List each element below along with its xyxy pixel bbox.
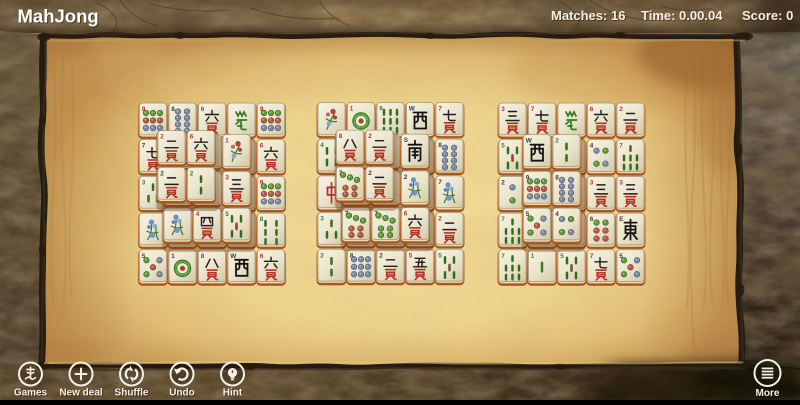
svg-text:7: 7: [501, 253, 505, 260]
svg-text:3: 3: [590, 179, 594, 186]
svg-text:3: 3: [320, 216, 324, 223]
svg-text:6: 6: [201, 106, 205, 113]
svg-text:5: 5: [225, 211, 229, 218]
svg-text:7: 7: [531, 106, 535, 113]
svg-text:S: S: [404, 137, 409, 144]
svg-text:2: 2: [619, 106, 623, 113]
svg-text:8: 8: [171, 106, 175, 113]
svg-text:7: 7: [438, 179, 442, 186]
svg-text:2: 2: [501, 179, 505, 186]
svg-text:8: 8: [201, 253, 205, 260]
svg-text:7: 7: [590, 253, 594, 260]
svg-text:1: 1: [531, 253, 535, 260]
svg-text:5: 5: [438, 252, 442, 259]
svg-text:8: 8: [260, 216, 264, 223]
svg-text:7: 7: [501, 216, 505, 223]
svg-text:Time: 0.00.04: Time: 0.00.04: [641, 8, 723, 23]
svg-text:8: 8: [555, 174, 559, 181]
svg-text:9: 9: [379, 106, 383, 113]
svg-text:4: 4: [555, 211, 559, 218]
svg-text:E: E: [619, 216, 624, 223]
svg-text:2: 2: [368, 133, 372, 140]
svg-text:2: 2: [368, 170, 372, 177]
svg-text:2: 2: [379, 252, 383, 259]
svg-text:2: 2: [160, 170, 164, 177]
svg-text:3: 3: [619, 179, 623, 186]
svg-text:Score: 0: Score: 0: [742, 8, 793, 23]
svg-text:7: 7: [438, 106, 442, 113]
svg-text:4: 4: [590, 143, 594, 150]
svg-text:2: 2: [404, 174, 408, 181]
svg-text:4: 4: [196, 211, 200, 218]
svg-text:1: 1: [225, 138, 229, 145]
svg-text:5: 5: [560, 253, 564, 260]
svg-text:7: 7: [142, 143, 146, 150]
svg-text:Shuffle: Shuffle: [115, 388, 149, 399]
svg-text:3: 3: [225, 174, 229, 181]
svg-text:6: 6: [260, 143, 264, 150]
svg-text:6: 6: [590, 216, 594, 223]
svg-text:3: 3: [501, 106, 505, 113]
svg-text:1: 1: [171, 253, 175, 260]
svg-text:6: 6: [590, 106, 594, 113]
svg-text:W: W: [526, 138, 533, 145]
svg-text:2: 2: [320, 252, 324, 259]
svg-text:8: 8: [339, 133, 343, 140]
svg-text:4: 4: [320, 142, 324, 149]
svg-text:6: 6: [260, 253, 264, 260]
svg-text:2: 2: [438, 216, 442, 223]
svg-text:W: W: [230, 253, 237, 260]
svg-text:More: More: [756, 388, 780, 399]
svg-text:2: 2: [190, 170, 194, 177]
svg-text:8: 8: [438, 142, 442, 149]
svg-text:Games: Games: [14, 388, 48, 399]
svg-text:2: 2: [555, 138, 559, 145]
svg-text:1: 1: [350, 106, 354, 113]
svg-text:7: 7: [619, 143, 623, 150]
svg-text:MahJong: MahJong: [18, 6, 99, 27]
svg-text:6: 6: [404, 211, 408, 218]
svg-text:5: 5: [501, 143, 505, 150]
svg-text:Matches: 16: Matches: 16: [551, 8, 625, 23]
svg-text:W: W: [409, 106, 416, 113]
svg-text:New deal: New deal: [59, 388, 103, 399]
svg-text:2: 2: [160, 134, 164, 141]
svg-text:3: 3: [142, 179, 146, 186]
svg-text:6: 6: [190, 134, 194, 141]
svg-text:Undo: Undo: [169, 388, 195, 399]
svg-text:Hint: Hint: [223, 388, 243, 399]
svg-text:5: 5: [409, 252, 413, 259]
